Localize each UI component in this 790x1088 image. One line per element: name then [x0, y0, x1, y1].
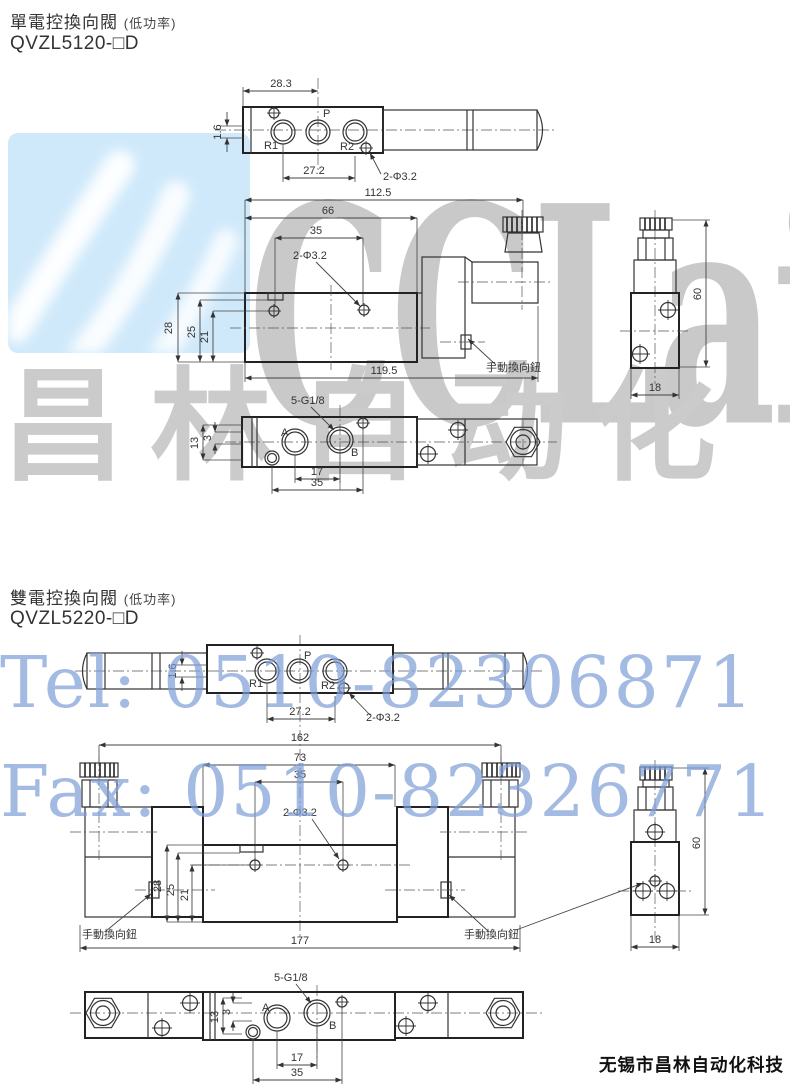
dim-label: 28.3: [270, 78, 291, 90]
dim-label: 13: [209, 1011, 221, 1023]
dim-label: 1.6: [212, 124, 224, 139]
dim-label: 13: [189, 437, 201, 449]
s1-bottom-view: A B 5-G1/8 13 3 17 35: [189, 395, 557, 494]
s1-side-view: 60 18: [620, 210, 710, 399]
dim-label-holes: 2-Φ3.2: [366, 712, 400, 724]
s2-top-view: 1.6 R1 P R2 27.2 2-Φ3.2: [75, 635, 545, 940]
port-label-b: B: [351, 447, 358, 459]
dim-label: 25: [165, 884, 177, 896]
dim-label: 21: [199, 331, 211, 343]
port-label-r2: R2: [321, 680, 335, 692]
port-label-p: P: [304, 650, 311, 662]
dim-label: 60: [692, 288, 704, 300]
manual-override-label: 手動換向鈕: [486, 360, 541, 374]
dim-label: 66: [322, 205, 334, 217]
port-label-a: A: [262, 1002, 270, 1014]
dim-label-thread: 5-G1/8: [274, 972, 308, 984]
dim-label: 112.5: [365, 187, 392, 199]
manual-override-label-left: 手動換向鈕: [82, 927, 137, 941]
dim-label: 27.2: [303, 165, 324, 177]
section2-title: 雙電控換向閥 (低功率): [10, 584, 176, 609]
dim-label: 35: [311, 477, 323, 489]
section1-model: QVZL5120-□D: [10, 33, 139, 55]
dim-label: 60: [691, 837, 703, 849]
s2-bottom-view: A B 5-G1/8 13 3 17 35: [70, 972, 545, 1084]
dim-label: 35: [310, 225, 322, 237]
section1-title: 單電控換向閥 (低功率): [10, 8, 176, 33]
section2-title-note: (低功率): [124, 592, 177, 607]
dim-label: 73: [294, 752, 306, 764]
datasheet-page: CCLair 昌林自动化 單電控換向閥 (低功率) QVZL5120-□D: [0, 0, 790, 1088]
dim-label: 35: [291, 1067, 303, 1079]
s2-side-view: 60 18: [618, 760, 709, 951]
dim-label-holes: 2-Φ3.2: [283, 807, 317, 819]
dim-label: 17: [291, 1052, 303, 1064]
dim-label: 18: [649, 934, 661, 946]
port-label-p: P: [323, 108, 330, 120]
dim-label: 28: [152, 880, 164, 892]
dim-label: 119.5: [371, 365, 398, 377]
port-label-r2: R2: [340, 141, 354, 153]
s2-front-view: 162 73 35 2-Φ3.2: [70, 732, 643, 952]
qvzl5220-drawing: 1.6 R1 P R2 27.2 2-Φ3.2 162 73: [0, 610, 790, 1088]
footer-company: 无锡市昌林自动化科技: [599, 1052, 784, 1077]
dim-label: 27.2: [289, 706, 310, 718]
port-label-r1: R1: [264, 140, 278, 152]
dim-label: 1.6: [167, 663, 179, 678]
port-label-r1: R1: [249, 678, 263, 690]
dim-label: 21: [179, 889, 191, 901]
section2-title-text: 雙電控換向閥: [10, 589, 118, 608]
dim-label: 35: [294, 769, 306, 781]
dim-label-thread: 5-G1/8: [291, 395, 325, 407]
section1-title-note: (低功率): [124, 16, 177, 31]
section1-title-text: 單電控換向閥: [10, 13, 118, 32]
section2-model: QVZL5220-□D: [10, 608, 139, 630]
dim-label: 3: [202, 435, 214, 441]
qvzl5120-drawing: 28.3 1.6 R1 P R2 27.2 2-Φ3.2 1: [0, 70, 790, 510]
dim-label: 25: [186, 326, 198, 338]
dim-label: 28: [163, 322, 175, 334]
dim-label: 18: [649, 382, 661, 394]
dim-label: 162: [291, 732, 309, 744]
dim-label: 177: [291, 935, 309, 947]
s1-top-view: 28.3 1.6 R1 P R2 27.2 2-Φ3.2: [212, 78, 557, 183]
dim-label-holes: 2-Φ3.2: [293, 250, 327, 262]
dim-label: 3: [221, 1009, 233, 1015]
dim-label-holes: 2-Φ3.2: [383, 171, 417, 183]
s1-front-view: 112.5 66 35 2-Φ3.2: [163, 187, 552, 382]
port-label-a: A: [281, 427, 289, 439]
port-label-b: B: [329, 1020, 336, 1032]
manual-override-label-right: 手動換向鈕: [464, 927, 519, 941]
